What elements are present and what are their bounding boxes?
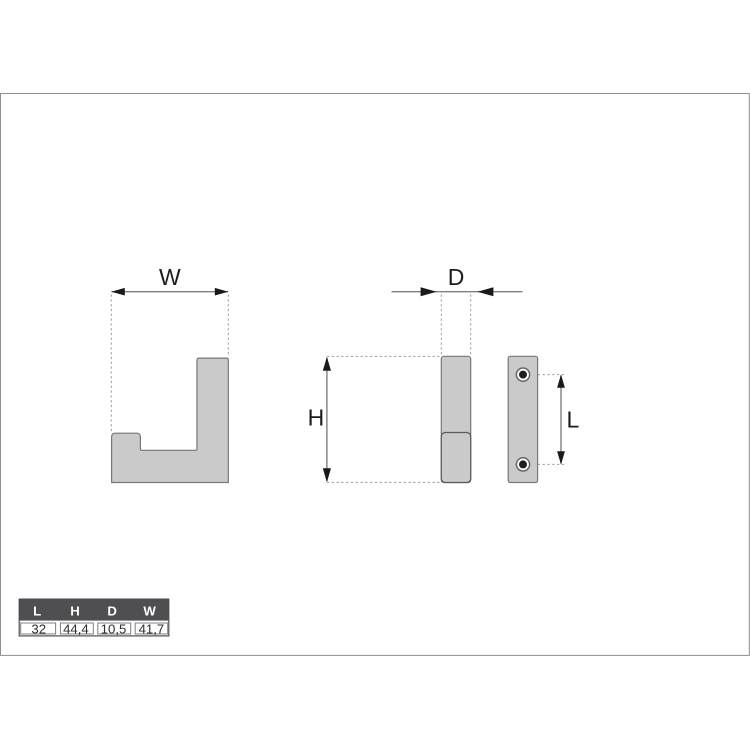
- svg-text:H: H: [308, 405, 325, 431]
- svg-text:32: 32: [31, 621, 46, 636]
- svg-text:44,4: 44,4: [63, 621, 89, 636]
- svg-text:W: W: [143, 604, 156, 619]
- svg-text:L: L: [567, 407, 580, 433]
- svg-text:H: H: [70, 604, 80, 619]
- svg-text:D: D: [448, 264, 465, 290]
- svg-text:W: W: [159, 264, 181, 290]
- svg-text:L: L: [33, 604, 41, 619]
- svg-text:41,7: 41,7: [139, 621, 165, 636]
- svg-text:D: D: [107, 604, 117, 619]
- svg-text:10,5: 10,5: [101, 621, 127, 636]
